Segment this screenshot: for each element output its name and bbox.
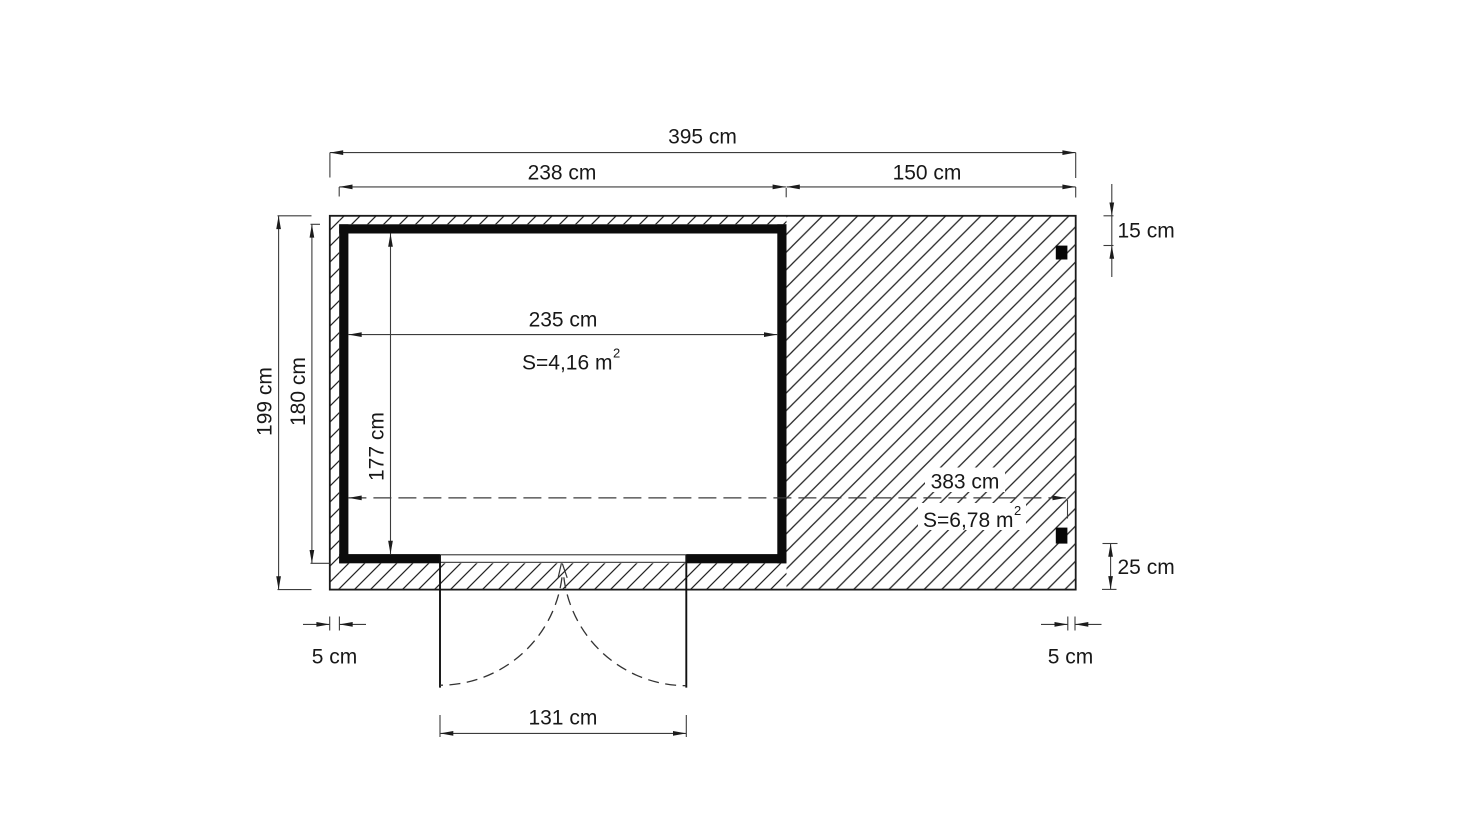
- svg-text:180 cm: 180 cm: [287, 357, 310, 426]
- svg-text:2: 2: [1014, 503, 1021, 518]
- svg-text:177 cm: 177 cm: [366, 412, 389, 481]
- svg-text:S=4,16 m: S=4,16 m: [522, 352, 612, 375]
- svg-text:2: 2: [613, 346, 620, 361]
- svg-text:395 cm: 395 cm: [668, 126, 737, 149]
- svg-text:150 cm: 150 cm: [893, 162, 962, 185]
- svg-text:235 cm: 235 cm: [529, 309, 598, 332]
- svg-text:238 cm: 238 cm: [528, 162, 597, 185]
- svg-text:5 cm: 5 cm: [312, 646, 358, 669]
- svg-text:15 cm: 15 cm: [1118, 220, 1175, 243]
- svg-text:5 cm: 5 cm: [1048, 646, 1094, 669]
- svg-text:383 cm: 383 cm: [931, 471, 1000, 494]
- svg-text:25 cm: 25 cm: [1118, 556, 1175, 579]
- svg-text:199 cm: 199 cm: [254, 367, 277, 436]
- svg-text:S=6,78 m: S=6,78 m: [923, 509, 1013, 532]
- svg-text:131 cm: 131 cm: [528, 707, 597, 730]
